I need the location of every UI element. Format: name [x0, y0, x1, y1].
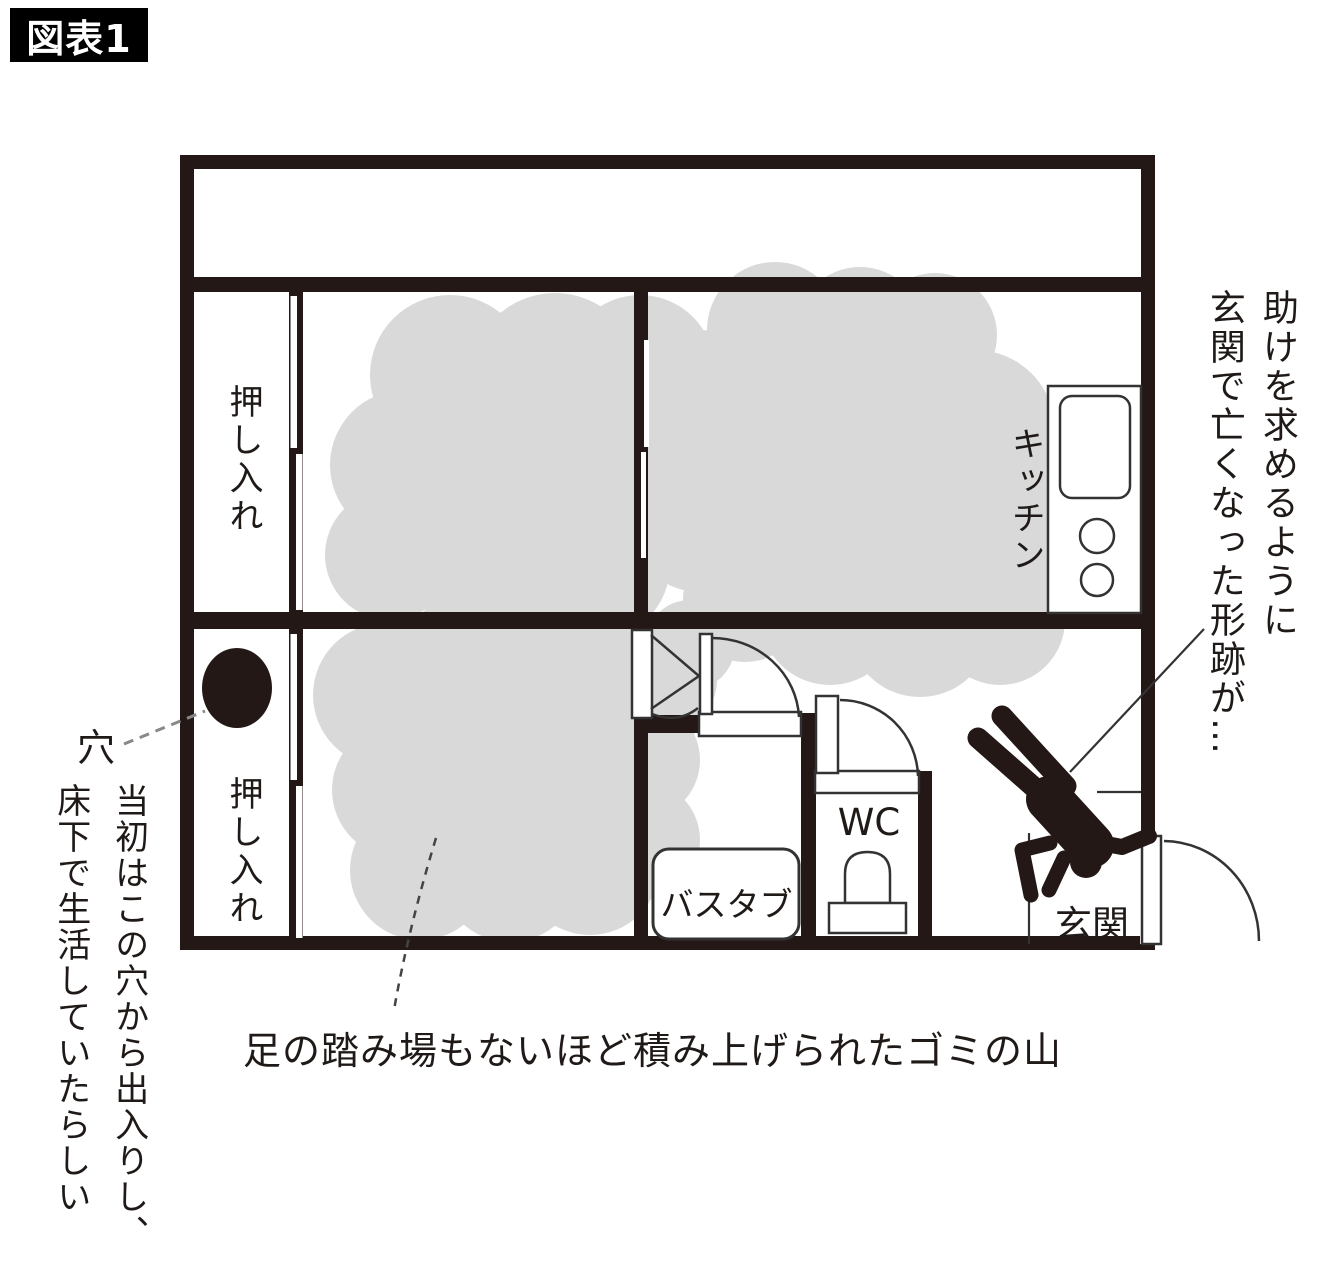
balcony-wall: [180, 277, 1155, 292]
annotation-line: 助けを求めるように: [1250, 289, 1303, 849]
hole-label: 穴: [77, 717, 115, 772]
annotation-hole-living: 当初はこの穴から出入りし、 床下で生活していたらしい: [41, 783, 157, 1264]
kitchen-label: キッチン: [1001, 426, 1050, 574]
annotation-garbage-pile: 足の踏み場もないほど積み上げられたゴミの山: [243, 1020, 1062, 1075]
bathroom-door-leaf: [700, 634, 712, 714]
wc-right-wall: [918, 771, 932, 944]
entrance-door-arc-icon: [1164, 841, 1259, 941]
closet-bottom-label: 押し入れ: [219, 776, 268, 928]
annotation-entrance-death: 助けを求めるように 玄関で亡くなった形跡が…: [1197, 289, 1303, 849]
bathtub-label: バスタブ: [654, 878, 799, 926]
burner-icon: [1080, 519, 1114, 553]
bathroom-right-wall: [801, 713, 816, 944]
closet-top-label: 押し入れ: [219, 384, 268, 536]
leader-line-entrance-note: [1070, 629, 1204, 772]
entrance-label: 玄関: [1048, 894, 1136, 948]
fallen-person-icon: [978, 716, 1149, 895]
floor-plan-figure: 図表1 押し入れ 押し入れ キッチン WC バスタブ 玄関 穴 助けを求めるよう…: [0, 0, 1340, 1264]
room-door-frame: [632, 630, 652, 718]
wc-door-arc-icon: [840, 700, 918, 776]
middle-wall: [180, 612, 1155, 629]
annotation-line: 当初はこの穴から出入りし、: [99, 783, 157, 1264]
figure-badge: 図表1: [10, 8, 148, 62]
annotation-line: 床下で生活していたらしい: [41, 783, 99, 1264]
toilet-icon: [845, 852, 890, 903]
bathroom-door-threshold: [699, 712, 801, 736]
wc-label: WC: [830, 801, 908, 844]
hole-icon: [202, 648, 272, 728]
annotation-line: 玄関で亡くなった形跡が…: [1197, 289, 1250, 849]
wc-door-leaf: [816, 696, 838, 773]
wc-door-threshold: [815, 771, 919, 793]
toilet-base-icon: [829, 903, 906, 933]
entrance-door-leaf: [1142, 836, 1161, 944]
sink-icon: [1060, 396, 1130, 498]
burner-icon: [1081, 564, 1113, 596]
